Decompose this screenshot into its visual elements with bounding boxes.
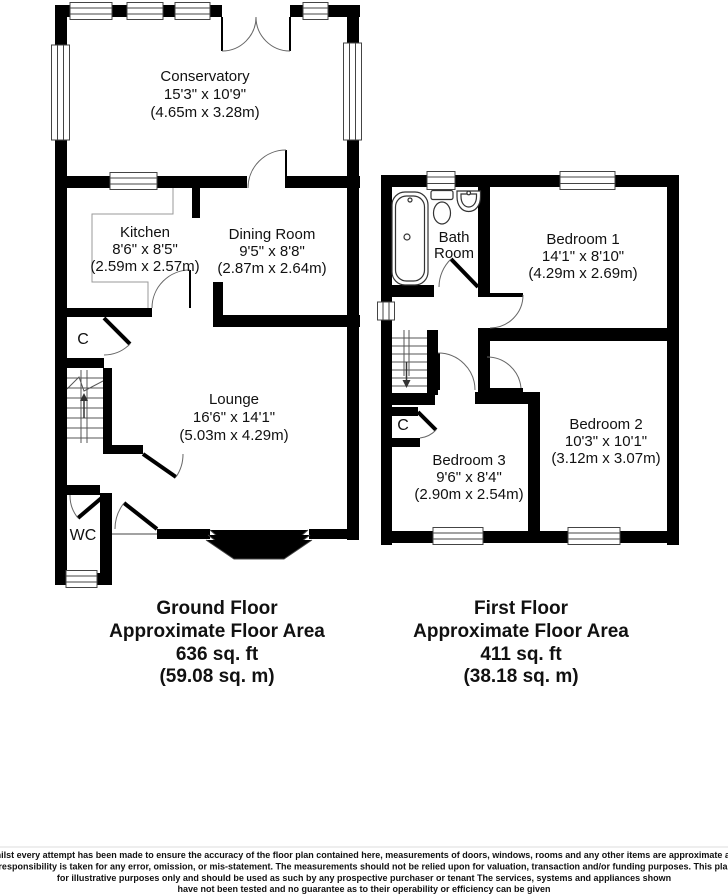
room-label-bedroom1: Bedroom 1	[546, 231, 619, 248]
window	[303, 3, 328, 20]
room-label-cupboard-ground: C	[77, 331, 89, 348]
room-size-metric: (4.65m x 3.28m)	[150, 104, 259, 121]
disclaimer: Whilst every attempt has been made to en…	[0, 847, 728, 894]
floorplan-drawing: Conservatory 15'3" x 10'9" (4.65m x 3.28…	[0, 0, 728, 896]
room-label-cupboard-first: C	[397, 417, 409, 434]
window	[70, 3, 112, 20]
door-wc	[70, 495, 105, 518]
first-floor-area-label: Approximate Floor Area	[413, 621, 629, 642]
door-cupboard-ground	[104, 318, 130, 355]
ground-floor-title: Ground Floor	[156, 598, 278, 619]
room-size-imperial: 8'6" x 8'5"	[112, 241, 178, 258]
room-label-conservatory: Conservatory	[160, 68, 250, 85]
front-door	[112, 503, 157, 534]
window	[52, 45, 70, 140]
room-size-imperial: 15'3" x 10'9"	[164, 86, 246, 103]
window	[110, 173, 157, 190]
room-label-kitchen: Kitchen	[120, 224, 170, 241]
room-label-bedroom3: Bedroom 3	[432, 452, 505, 469]
room-size-imperial: 9'6" x 8'4"	[436, 469, 502, 486]
floorplan-page: Conservatory 15'3" x 10'9" (4.65m x 3.28…	[0, 0, 728, 896]
room-label-dining-room: Dining Room	[229, 226, 316, 243]
first-floor-caption: First Floor Approximate Floor Area 411 s…	[413, 598, 629, 687]
room-size-metric: (2.59m x 2.57m)	[90, 258, 199, 275]
room-size-metric: (4.29m x 2.69m)	[528, 265, 637, 282]
ground-floor-plan: Conservatory 15'3" x 10'9" (4.65m x 3.28…	[52, 3, 362, 688]
ground-floor-area-label: Approximate Floor Area	[109, 621, 325, 642]
room-size-metric: (2.87m x 2.64m)	[217, 260, 326, 277]
sink-icon	[457, 191, 481, 212]
ground-floor-caption: Ground Floor Approximate Floor Area 636 …	[109, 598, 325, 687]
room-size-metric: (5.03m x 4.29m)	[179, 427, 288, 444]
door-bedroom3	[438, 353, 475, 390]
ground-floor-doors	[70, 17, 290, 534]
door-conservatory-dining	[248, 150, 286, 188]
room-size-imperial: 16'6" x 14'1"	[193, 409, 275, 426]
room-label-bathroom-line2: Room	[434, 245, 474, 262]
ground-floor-stairs	[67, 370, 103, 443]
kitchen-counter	[92, 188, 173, 308]
room-size-metric: (3.12m x 3.07m)	[551, 450, 660, 467]
first-floor-title: First Floor	[474, 598, 569, 619]
door-bathroom	[439, 259, 478, 287]
window	[568, 528, 620, 545]
room-label-bathroom-line1: Bath	[439, 229, 470, 246]
ground-floor-windows	[52, 3, 362, 588]
room-size-imperial: 9'5" x 8'8"	[239, 243, 305, 260]
ground-floor-area-sqm: (59.08 sq. m)	[159, 666, 274, 687]
first-floor-doors	[418, 259, 523, 438]
room-size-metric: (2.90m x 2.54m)	[414, 486, 523, 503]
disclaimer-line-4: have not been tested and no guarantee as…	[177, 884, 550, 894]
door-hall-lounge	[143, 454, 183, 477]
ground-floor-walls	[55, 5, 360, 585]
window	[66, 571, 97, 588]
first-floor-walls	[381, 175, 679, 545]
french-doors-icon	[222, 17, 290, 51]
window	[127, 3, 163, 20]
stairs-up-arrow-icon	[80, 393, 88, 418]
first-floor-area-sqm: (38.18 sq. m)	[463, 666, 578, 687]
window	[175, 3, 210, 20]
window	[560, 172, 615, 190]
disclaimer-line-3: for illustrative purposes only and shoul…	[57, 873, 671, 883]
disclaimer-line-1: Whilst every attempt has been made to en…	[0, 850, 728, 860]
room-size-imperial: 10'3" x 10'1"	[565, 433, 647, 450]
door-bedroom1	[490, 295, 523, 328]
ground-floor-labels: Conservatory 15'3" x 10'9" (4.65m x 3.28…	[70, 68, 327, 544]
first-floor-plan: Bath Room Bedroom 1 14'1" x 8'10" (4.29m…	[378, 172, 680, 688]
first-floor-windows	[378, 172, 621, 545]
room-label-wc: WC	[70, 527, 97, 544]
first-floor-labels: Bath Room Bedroom 1 14'1" x 8'10" (4.29m…	[397, 229, 660, 503]
first-floor-area-sqft: 411 sq. ft	[480, 644, 562, 665]
door-cupboard-first	[418, 412, 436, 438]
bathtub-icon	[392, 192, 428, 285]
ground-floor-area-sqft: 636 sq. ft	[176, 644, 259, 665]
first-floor-stairs	[392, 330, 427, 388]
door-kitchen	[152, 270, 190, 308]
window	[433, 528, 483, 545]
bay-window	[206, 530, 312, 559]
disclaimer-line-2: no responsibility is taken for any error…	[0, 862, 728, 872]
toilet-icon	[431, 191, 453, 225]
window	[427, 172, 455, 190]
room-size-imperial: 14'1" x 8'10"	[542, 248, 624, 265]
window	[344, 43, 362, 140]
door-bedroom2	[486, 357, 523, 390]
stairs-down-arrow-icon	[403, 362, 411, 388]
room-label-lounge: Lounge	[209, 391, 259, 408]
bathroom-fixtures	[392, 191, 481, 286]
room-label-bedroom2: Bedroom 2	[569, 416, 642, 433]
window	[378, 302, 395, 320]
